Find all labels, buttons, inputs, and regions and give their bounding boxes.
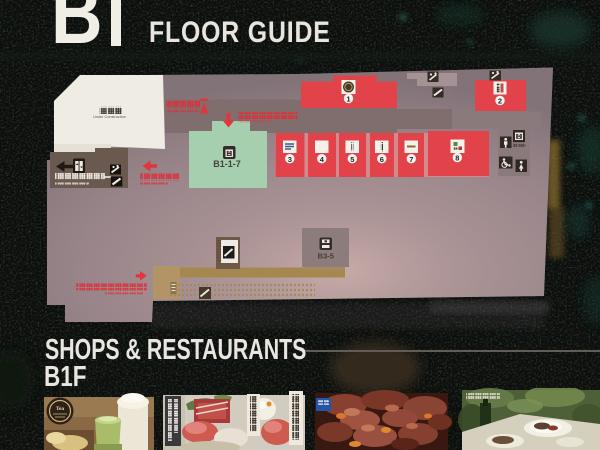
svg-text:7: 7 [409, 155, 413, 164]
svg-text:B1-1-7: B1-1-7 [213, 159, 241, 169]
svg-text:8: 8 [455, 154, 459, 163]
svg-text:1: 1 [346, 95, 350, 104]
svg-text:Tea: Tea [56, 406, 65, 412]
svg-text:6: 6 [380, 155, 384, 164]
svg-text:3: 3 [288, 155, 292, 164]
svg-text:Under Construction: Under Construction [93, 115, 126, 119]
svg-text:5: 5 [350, 155, 354, 164]
svg-text:2: 2 [498, 97, 502, 106]
svg-text:B3-5: B3-5 [318, 252, 334, 261]
